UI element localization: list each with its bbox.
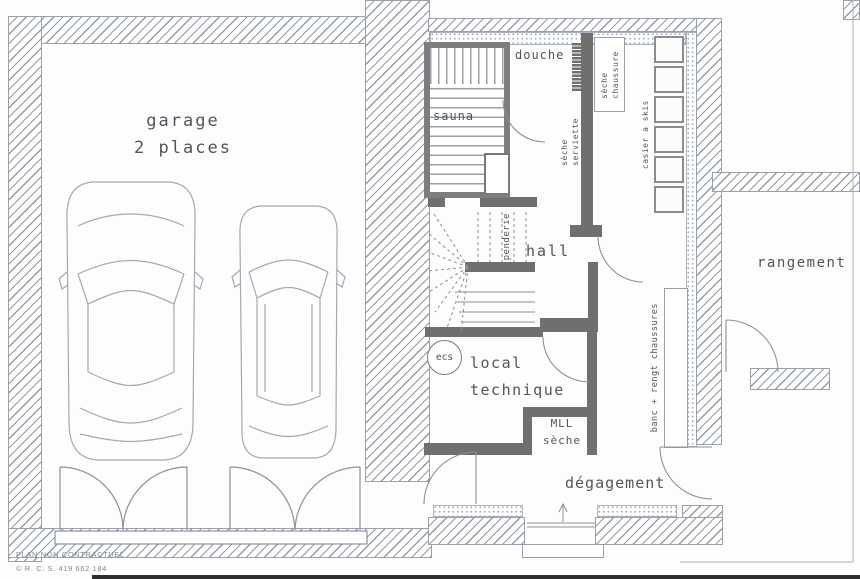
ski-locker-cell bbox=[654, 126, 684, 153]
wall-garage-top bbox=[8, 16, 366, 44]
seche-serviette-line2: serviette bbox=[571, 118, 580, 166]
local-technique-label: local technique bbox=[470, 350, 565, 404]
wall-middle bbox=[365, 0, 430, 482]
door-arc-degagement-right bbox=[660, 447, 712, 499]
partition-stairs-top-a bbox=[428, 197, 445, 207]
wall-rangement-top bbox=[712, 172, 860, 192]
wall-right-upper bbox=[696, 18, 722, 445]
door-arc-degagement-garage bbox=[424, 452, 476, 504]
partition-hall-localtech-left bbox=[425, 327, 543, 337]
mll-line1: MLL bbox=[551, 417, 574, 430]
shoe-dryer-box: sèche chaussure bbox=[594, 37, 625, 112]
seche-serviette-line1: sèche bbox=[560, 139, 569, 166]
douche-label: douche bbox=[515, 48, 564, 62]
garage-label: garage 2 places bbox=[118, 108, 248, 162]
insulation-entry-left bbox=[433, 505, 523, 517]
shoe-bench bbox=[664, 288, 688, 448]
shoe-dryer-line1: sèche bbox=[600, 72, 609, 99]
ski-lockers bbox=[654, 36, 684, 213]
ski-locker-cell bbox=[654, 36, 684, 63]
degagement-label: dégagement bbox=[565, 474, 665, 492]
banc-label: banc + rengt chaussures bbox=[650, 303, 660, 432]
towel-radiator bbox=[572, 42, 581, 92]
partition-localtech-bottom bbox=[424, 443, 530, 455]
ski-locker-cell bbox=[654, 66, 684, 93]
rangement-label: rangement bbox=[757, 255, 846, 271]
shoe-dryer-label: sèche chaussure bbox=[599, 51, 621, 99]
shower-tray bbox=[484, 153, 510, 195]
car-wagon bbox=[232, 206, 345, 458]
footer-disclaimer: PLAN NON CONTRACTUEL bbox=[16, 550, 125, 559]
partition-stairs-top-b bbox=[480, 197, 537, 207]
garage-line1: garage bbox=[146, 111, 219, 131]
sauna-benches-upper bbox=[430, 48, 504, 84]
insulation-entry-right bbox=[597, 505, 677, 517]
partition-mll-right bbox=[587, 332, 597, 455]
local-technique-line1: local bbox=[470, 354, 523, 372]
hall-label: hall bbox=[526, 242, 570, 260]
wall-top-right-corner bbox=[843, 0, 860, 20]
ski-locker-cell bbox=[654, 156, 684, 183]
entry-door bbox=[527, 504, 595, 527]
ecs-label: ecs bbox=[436, 352, 453, 363]
garage-line2: 2 places bbox=[134, 138, 232, 158]
penderie-label: penderie bbox=[502, 213, 512, 260]
ski-locker-cell bbox=[654, 96, 684, 123]
mll-label: MLL sèche bbox=[540, 415, 584, 449]
partition-douche-right bbox=[581, 33, 593, 233]
door-arc-hall-corridor bbox=[598, 236, 643, 282]
wall-degagement-bottom-left bbox=[428, 517, 525, 545]
wall-interior-top bbox=[428, 18, 720, 32]
door-arc-rangement bbox=[726, 320, 778, 372]
scan-edge bbox=[92, 575, 860, 579]
ski-locker-cell bbox=[654, 186, 684, 213]
stair-landing-edge bbox=[465, 262, 535, 272]
footer-rcs: © R. C. S. 419 662 184 bbox=[16, 564, 107, 573]
wall-rangement-bottom bbox=[750, 368, 830, 390]
floor-plan: sèche chaussure ecs bbox=[0, 0, 860, 579]
staircase bbox=[428, 212, 535, 333]
sauna-label: sauna bbox=[433, 109, 474, 123]
mll-line2: sèche bbox=[543, 434, 581, 447]
wall-garage-left bbox=[8, 16, 42, 562]
partition-hall-top-right bbox=[570, 225, 602, 237]
car-sedan bbox=[59, 182, 203, 460]
partition-hall-localtech-right bbox=[540, 318, 598, 332]
hot-water-tank: ecs bbox=[427, 340, 462, 375]
seche-serviette-label: sèche serviette bbox=[559, 118, 581, 166]
local-technique-line2: technique bbox=[470, 381, 565, 399]
wall-degagement-bottom-right bbox=[595, 517, 723, 545]
casier-skis-label: casier a skis bbox=[641, 100, 650, 169]
shoe-dryer-line2: chaussure bbox=[611, 51, 620, 99]
entry-threshold bbox=[522, 544, 604, 558]
